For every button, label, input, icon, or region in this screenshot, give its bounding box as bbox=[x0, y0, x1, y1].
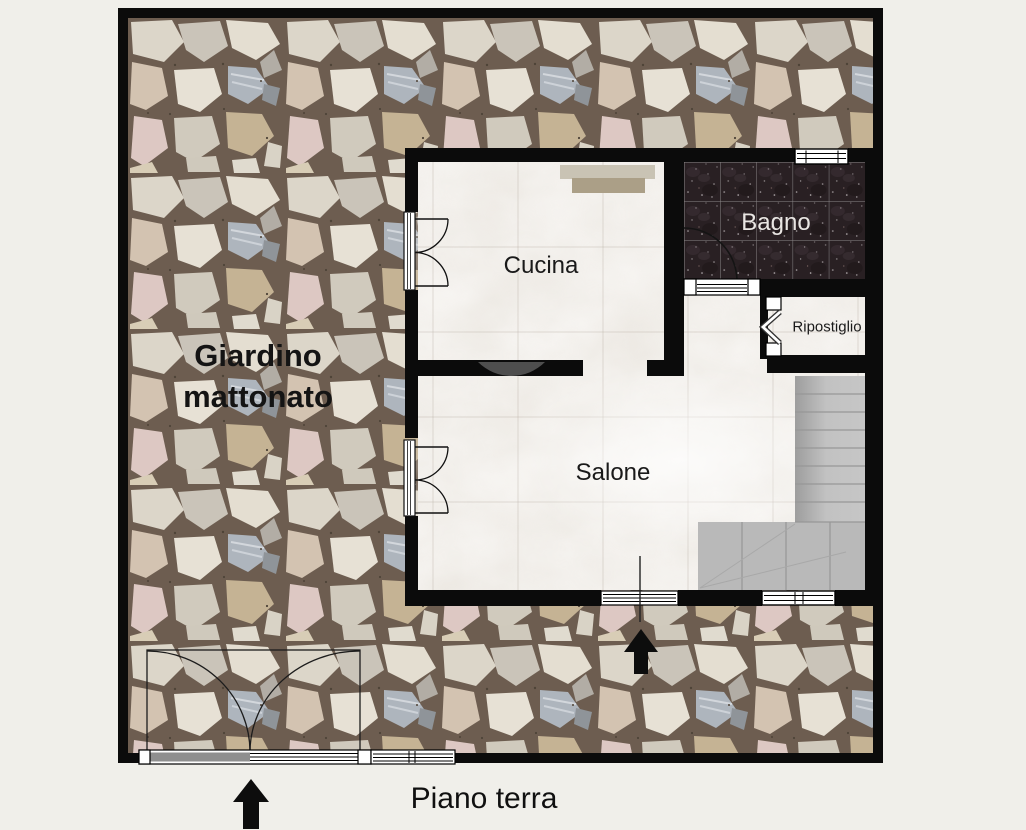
wall-segment bbox=[118, 8, 128, 763]
wall-segment bbox=[760, 279, 865, 297]
wall-segment bbox=[405, 590, 601, 606]
kitchen-counter bbox=[560, 165, 655, 193]
salone-window bbox=[762, 591, 835, 605]
wall-segment bbox=[405, 148, 795, 162]
garden-fence-window bbox=[371, 750, 455, 764]
ripostiglio-label: Ripostiglio bbox=[792, 319, 861, 336]
wall-segment bbox=[118, 8, 883, 18]
wall-segment bbox=[865, 148, 883, 605]
wall-segment bbox=[405, 148, 418, 212]
wall-segment bbox=[678, 590, 762, 606]
wall-segment bbox=[455, 753, 883, 763]
wall-segment bbox=[647, 360, 684, 376]
cucina-label: Cucina bbox=[504, 252, 579, 280]
gate-arrow-icon bbox=[233, 779, 269, 829]
wall-segment bbox=[767, 355, 883, 373]
bagno-window bbox=[795, 149, 848, 164]
bagno-door-threshold bbox=[684, 279, 760, 295]
garden-label: Giardino mattonato bbox=[138, 335, 378, 417]
bagno-label: Bagno bbox=[741, 209, 810, 237]
wall-segment bbox=[664, 160, 684, 376]
salone-label: Salone bbox=[576, 459, 651, 487]
floor-plan-page: Cucina Bagno Ripostiglio Salone Giardino… bbox=[0, 0, 1026, 830]
floor-caption: Piano terra bbox=[411, 782, 558, 816]
wall-segment bbox=[118, 753, 140, 763]
